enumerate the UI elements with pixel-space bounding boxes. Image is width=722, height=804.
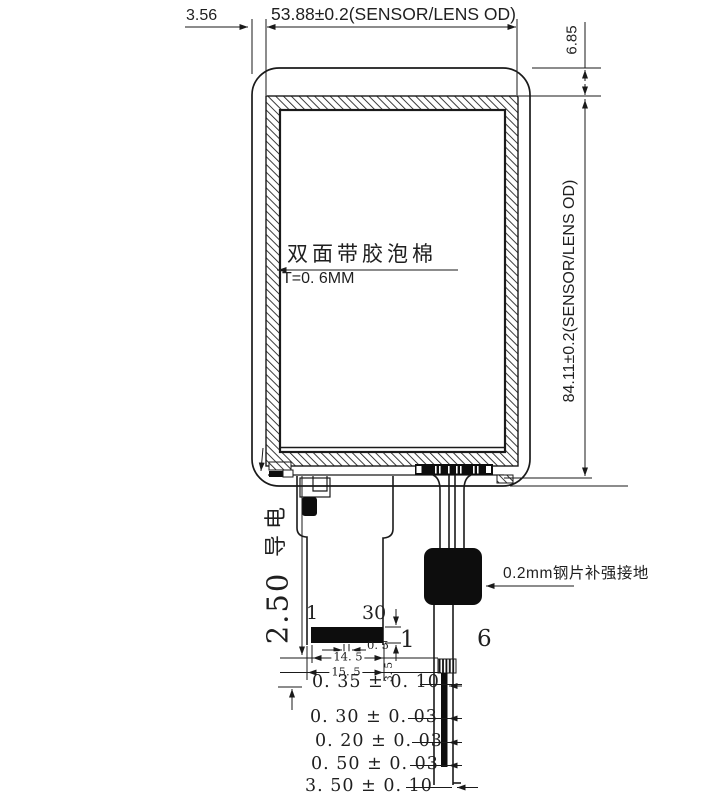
- dim-contact-width: 14. 5: [331, 651, 364, 663]
- stack-dim-3: 0. 50 ± 0. 03: [311, 755, 439, 773]
- tail-contact-block: [438, 659, 456, 673]
- stack-dim-1: 0. 30 ± 0. 03: [310, 708, 438, 726]
- dim-sensor-height: 84.11±0.2(SENSOR/LENS OD): [562, 180, 578, 403]
- stack-dim-2: 0. 20 ± 0. 03: [315, 732, 443, 750]
- driver-ic-strip: [415, 464, 493, 475]
- foam-note-line2: T=0. 6MM: [282, 271, 354, 288]
- drawing-page: 3.56 53.88±0.2(SENSOR/LENS OD) 6.85 84.1…: [0, 0, 722, 804]
- dim-sensor-width: 53.88±0.2(SENSOR/LENS OD): [271, 5, 516, 23]
- foam-corner-piece: [497, 475, 513, 483]
- conductive-tab: [302, 497, 317, 516]
- dim-top-right: 6.85: [565, 25, 580, 54]
- touch-pin-count-label: 6: [477, 627, 492, 651]
- dim-connector-height: 1: [400, 628, 415, 652]
- pin-first-label: 1: [306, 604, 318, 624]
- steel-note: 0.2mm钢片补强接地: [503, 566, 649, 582]
- steel-stiffener: [424, 548, 482, 605]
- conductive-pad: [269, 462, 293, 477]
- conductive-note: 导电: [265, 501, 287, 557]
- stack-dim-4: 3. 50 ± 0. 10: [305, 777, 433, 795]
- dim-pin-pitch: 0. 5: [367, 639, 389, 651]
- dim-fpc: 2.50: [264, 572, 293, 645]
- dim-offset-left: 3.56: [186, 8, 217, 25]
- tail-connector-bar: [441, 673, 448, 767]
- stack-dim-0: 0. 35 ± 0. 10: [312, 673, 440, 691]
- pin-last-label: 30: [362, 604, 386, 624]
- foam-note-line1: 双面带胶泡棉: [287, 244, 437, 266]
